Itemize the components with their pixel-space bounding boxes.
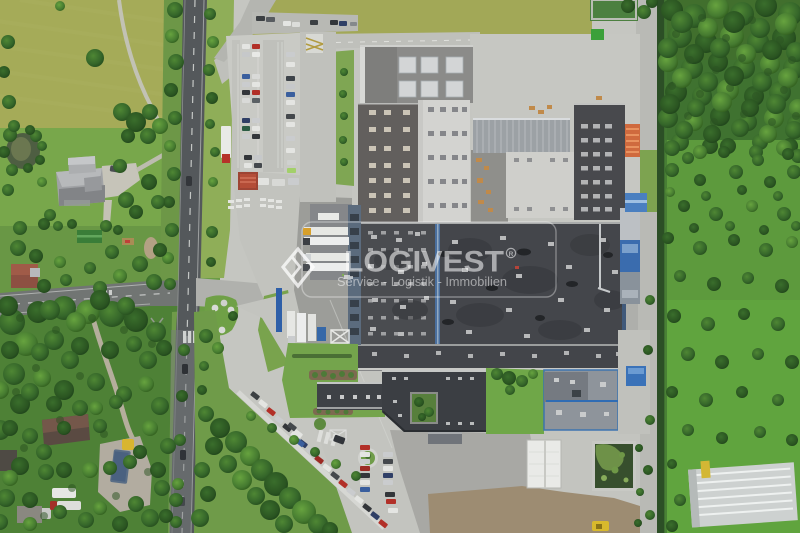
svg-text:LOGIVEST: LOGIVEST (344, 246, 504, 279)
svg-text:R: R (509, 251, 514, 258)
svg-text:Service - Logistik - Immobilie: Service - Logistik - Immobilien (337, 275, 507, 289)
